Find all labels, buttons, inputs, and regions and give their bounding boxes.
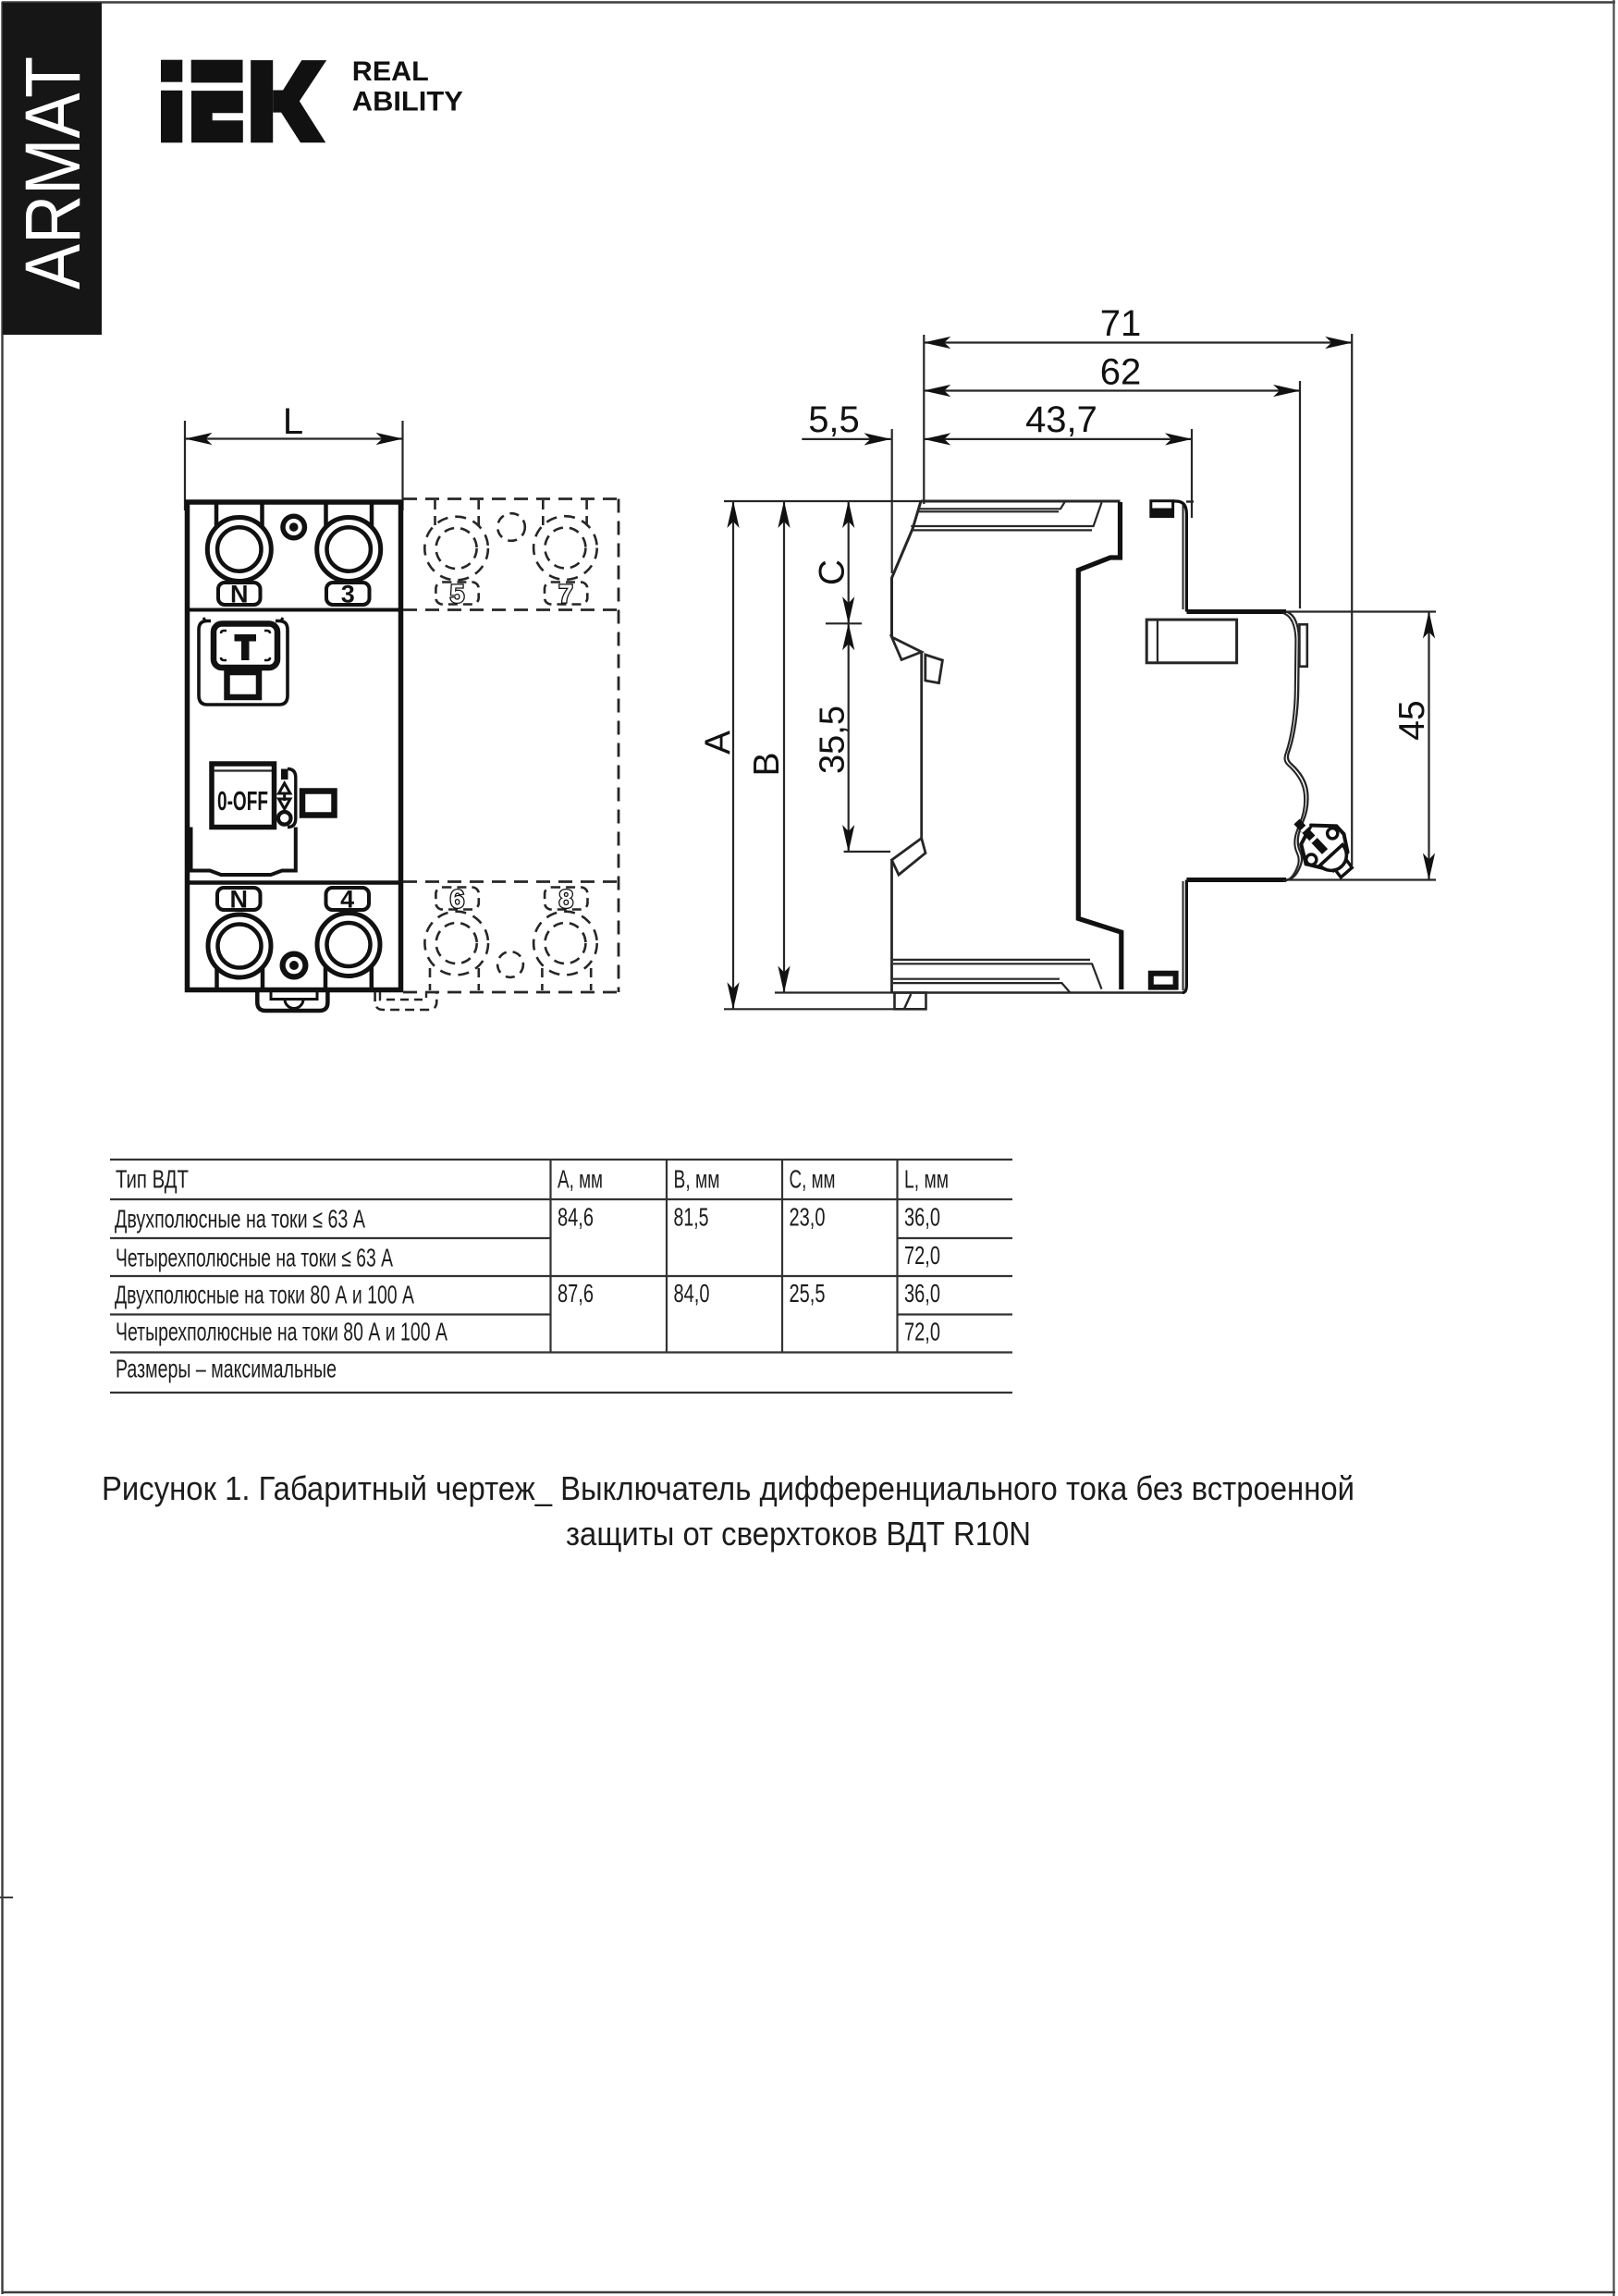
svg-text:REAL: REAL <box>352 56 429 87</box>
svg-text:C: C <box>813 559 852 585</box>
svg-text:А, мм: А, мм <box>558 1165 603 1194</box>
svg-text:72,0: 72,0 <box>904 1241 940 1270</box>
svg-text:25,5: 25,5 <box>790 1279 826 1308</box>
svg-text:5,5: 5,5 <box>808 399 860 440</box>
svg-text:Рисунок 1. Габаритный чертеж_: Рисунок 1. Габаритный чертеж_ Выключател… <box>102 1469 1354 1507</box>
svg-text:6: 6 <box>450 885 465 914</box>
svg-text:В, мм: В, мм <box>674 1165 720 1194</box>
svg-text:0-OFF: 0-OFF <box>217 787 268 816</box>
svg-text:36,0: 36,0 <box>904 1202 940 1231</box>
svg-text:Двухполюсные на токи ≤ 63 А: Двухполюсные на токи ≤ 63 А <box>115 1205 365 1234</box>
svg-text:7: 7 <box>558 580 573 608</box>
svg-text:защиты от сверхтоков ВДТ R10N: защиты от сверхтоков ВДТ R10N <box>566 1515 1031 1553</box>
svg-text:87,6: 87,6 <box>558 1279 594 1308</box>
svg-text:Четырехполюсные на токи 80 А и: Четырехполюсные на токи 80 А и 100 А <box>116 1318 447 1346</box>
svg-text:L: L <box>283 401 303 442</box>
svg-text:81,5: 81,5 <box>674 1202 709 1231</box>
svg-text:N: N <box>229 886 248 914</box>
svg-text:84,0: 84,0 <box>674 1279 710 1308</box>
svg-text:43,7: 43,7 <box>1025 399 1097 440</box>
svg-text:84,6: 84,6 <box>558 1202 594 1231</box>
svg-text:L, мм: L, мм <box>904 1165 949 1194</box>
svg-text:С, мм: С, мм <box>790 1165 836 1194</box>
svg-text:ABILITY: ABILITY <box>352 87 463 117</box>
svg-text:23,0: 23,0 <box>790 1202 826 1231</box>
svg-text:62: 62 <box>1100 352 1142 393</box>
svg-text:45: 45 <box>1392 700 1432 740</box>
svg-text:71: 71 <box>1100 303 1142 344</box>
svg-text:N: N <box>230 581 249 608</box>
svg-text:Размеры – максимальные: Размеры – максимальные <box>116 1355 337 1383</box>
svg-text:ARMAT: ARMAT <box>9 56 96 289</box>
svg-text:4: 4 <box>340 886 354 914</box>
svg-text:A: A <box>699 731 739 755</box>
svg-text:Четырехполюсные на токи ≤ 63 А: Четырехполюсные на токи ≤ 63 А <box>116 1244 393 1272</box>
svg-text:B: B <box>747 752 787 776</box>
svg-text:72,0: 72,0 <box>904 1318 940 1346</box>
svg-text:3: 3 <box>341 581 355 608</box>
svg-text:35,5: 35,5 <box>814 706 852 774</box>
svg-text:8: 8 <box>559 885 574 914</box>
svg-text:Двухполюсные на токи 80 А и 10: Двухполюсные на токи 80 А и 100 А <box>115 1281 414 1309</box>
svg-text:5: 5 <box>450 580 465 608</box>
svg-text:36,0: 36,0 <box>904 1279 940 1308</box>
svg-text:Тип ВДТ: Тип ВДТ <box>116 1165 189 1194</box>
